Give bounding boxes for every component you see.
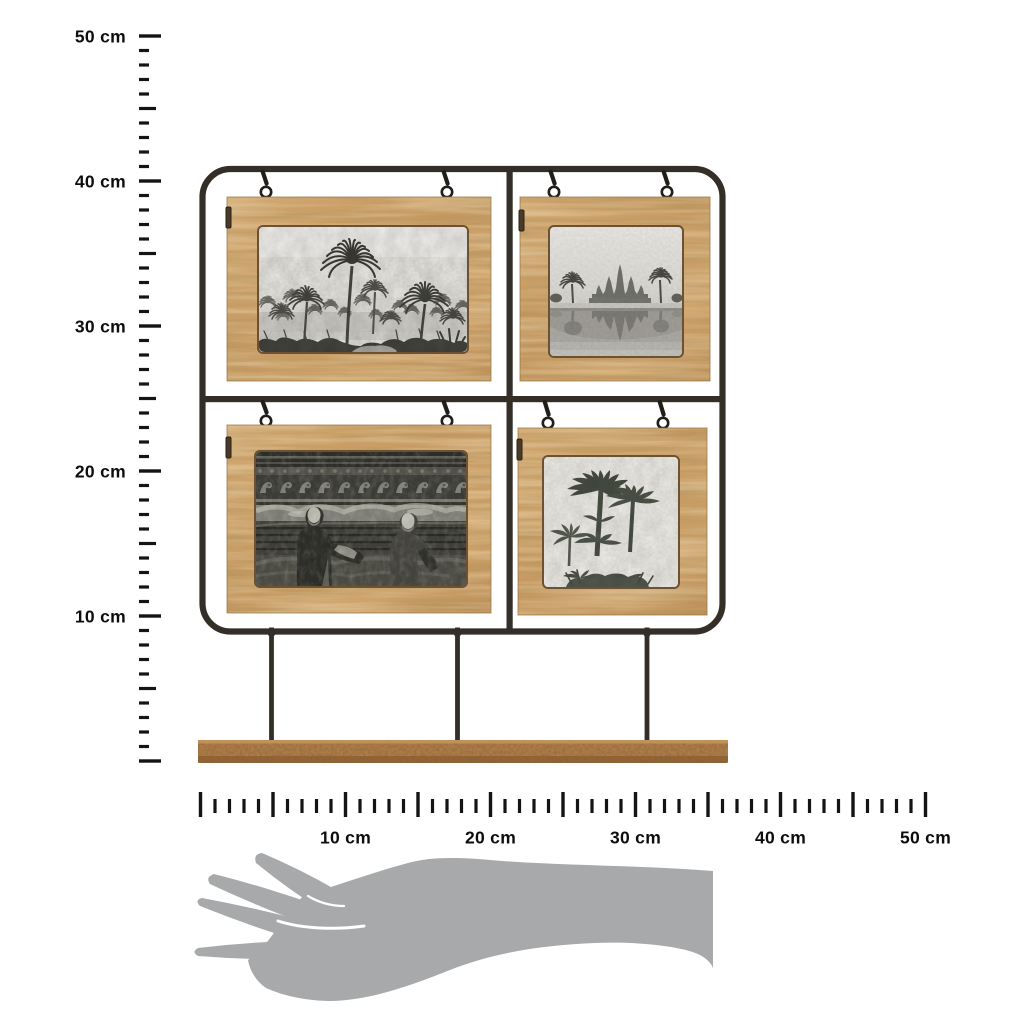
svg-text:40 cm: 40 cm	[75, 171, 126, 191]
svg-text:30 cm: 30 cm	[75, 316, 126, 336]
svg-text:20 cm: 20 cm	[465, 828, 516, 848]
svg-text:10 cm: 10 cm	[75, 606, 126, 626]
svg-text:10 cm: 10 cm	[320, 828, 371, 848]
svg-text:40 cm: 40 cm	[755, 828, 806, 848]
svg-text:50 cm: 50 cm	[75, 26, 126, 46]
svg-text:30 cm: 30 cm	[610, 828, 661, 848]
svg-text:50 cm: 50 cm	[900, 828, 951, 848]
svg-text:20 cm: 20 cm	[75, 461, 126, 481]
